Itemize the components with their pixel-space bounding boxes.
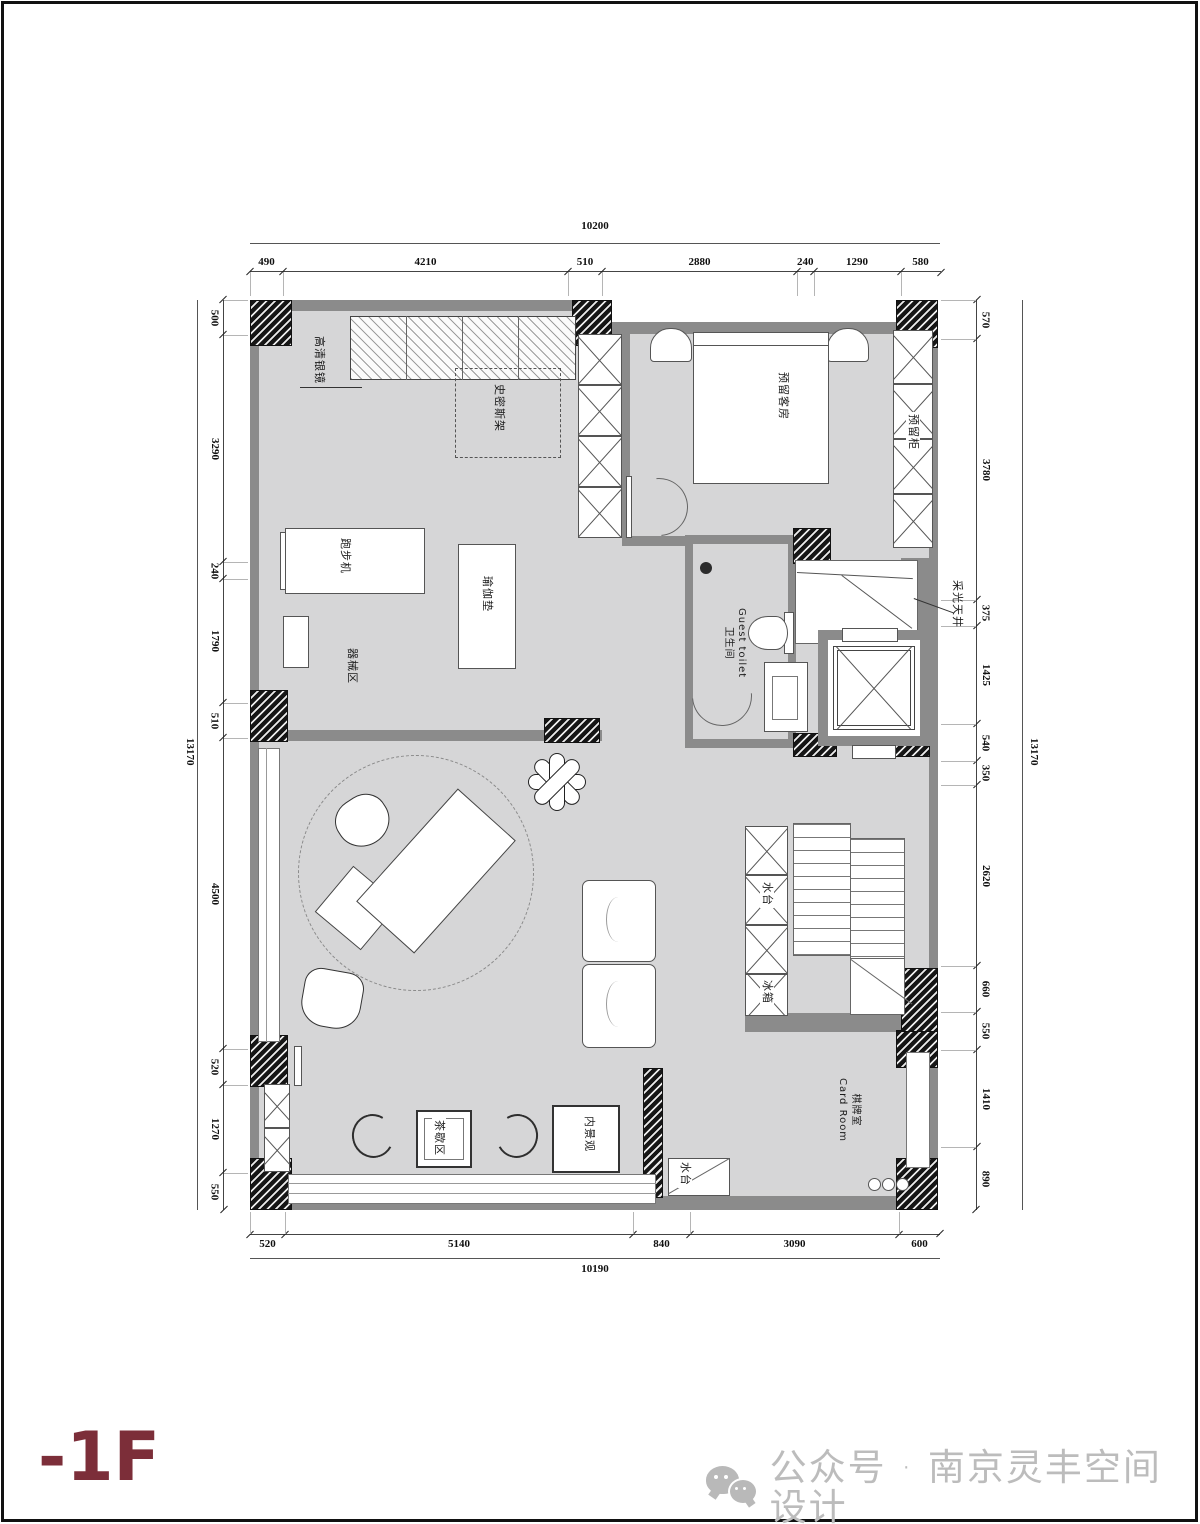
wall-toilet-top [693,535,788,544]
dim-segment: 2620 [976,785,994,966]
smith-rack-outline [455,368,561,458]
bar-stool [882,1178,895,1191]
dim-segment: 1425 [976,626,994,724]
label-skylight: 采光天井 [950,580,964,628]
gym-cabinet [578,334,622,538]
label-smith-rack: 史密斯架 [492,384,506,432]
wall-toilet-bottom [685,739,796,748]
dim-segment: 580 [901,256,941,272]
dim-left-total: 13170 [184,738,196,766]
wall-top [250,300,602,311]
dim-segment: 540 [976,724,994,761]
dim-left-total-line [197,300,198,1210]
cabinet-cell [745,826,788,875]
cabinet-cell [264,1084,290,1128]
dim-segment: 840 [633,1234,690,1250]
mirror-leader-line [300,387,362,388]
dim-bottom-total: 10190 [250,1263,940,1275]
dim-segment: 5140 [285,1234,633,1250]
toilet-bowl [748,616,788,650]
dim-segment: 510 [568,256,602,272]
pier-left-lower [250,1035,288,1087]
dim-top-total-line [250,243,940,244]
wechat-icon [706,1466,754,1510]
window-bottom-line [288,1193,656,1194]
dim-segment: 240 [797,256,814,272]
label-fridge: 冰箱 [760,978,774,1006]
mirror-divider [406,316,407,380]
dim-segment: 2880 [602,256,797,272]
stair-flight-right [850,838,905,959]
bar-stool [868,1178,881,1191]
label-toilet-cn: 卫生间 [722,627,735,660]
dim-segment: 600 [899,1234,940,1250]
cabinet-cell [893,494,933,548]
dim-segment: 520 [206,1049,224,1085]
nightstand-right [827,328,869,362]
dim-segment: 550 [206,1173,224,1210]
dim-segment: 4500 [206,738,224,1049]
dim-chain-right: 570 3780 375 1425 540 350 2620 660 550 1… [976,300,994,1210]
dim-segment: 660 [976,966,994,1012]
label-guest-room: 预留客房 [776,372,790,420]
tea-door-leaf [294,1046,302,1086]
cabinet-cell [893,330,933,384]
cabinet-cell [578,385,622,436]
watermark-text: 公众号 · 南京灵丰空间设计 [770,1448,1200,1524]
pier-top-left [250,300,292,346]
dim-segment: 510 [206,703,224,738]
bar-stool [896,1178,909,1191]
dim-segment: 240 [206,562,224,579]
floor-level-label: -1F [38,1424,160,1492]
dim-segment: 490 [250,256,283,272]
label-yoga-mat: 瑜伽垫 [480,576,494,612]
dim-segment: 520 [250,1234,285,1250]
label-water-counter-2: 水台 [678,1160,692,1188]
plant-icon [528,753,586,811]
label-card-room: 棋牌室 Card Room [836,1078,862,1142]
window-left-mullion [266,748,267,1042]
dim-top-total: 10200 [250,220,940,232]
label-card-room-cn: 棋牌室 [849,1094,862,1127]
nightstand-left [650,328,692,362]
label-reserved-cabinet: 预留柜 [906,412,920,452]
sink-basin [772,676,798,720]
elevator-landing [852,745,896,759]
label-inner-landscape: 内景观 [582,1116,596,1152]
cabinet-cell [745,925,788,974]
label-equipment-area: 器械区 [345,648,359,684]
stair-flight-left [793,823,851,956]
dim-right-total: 13170 [1028,738,1040,766]
dim-chain-left: 500 3290 240 1790 510 4500 520 1270 550 [206,300,224,1210]
label-mirror: 高清银镜 [312,336,326,384]
dim-segment: 890 [976,1147,994,1210]
elevator-door [842,628,898,642]
dim-chain-top: 490 4210 510 2880 240 1290 580 [250,256,940,272]
guest-bed-headboard [693,332,829,346]
window-left [258,748,280,1042]
cabinet-cell [264,1128,290,1172]
dim-right-total-line [1022,300,1023,1210]
label-tea-area: 茶歇区 [432,1118,446,1158]
label-water-counter: 水台 [760,880,774,908]
window-bottom [288,1174,656,1204]
dim-bottom-total-line [250,1258,940,1259]
dim-segment: 500 [206,300,224,335]
gym-bench [283,616,309,668]
dim-segment: 3090 [690,1234,899,1250]
wechat-bubble-small [728,1478,758,1505]
label-treadmill: 跑步机 [338,538,352,574]
label-toilet-en: Guest toilet [735,608,748,678]
floorplan-page: 10200 490 4210 510 2880 240 1290 580 520… [0,0,1200,1524]
dim-segment: 1410 [976,1050,994,1147]
pier-gym-divider [544,718,600,743]
dim-segment: 550 [976,1012,994,1050]
floor-cushion [582,964,656,1048]
cabinet-cell [578,487,622,538]
guest-bed [693,332,829,484]
pier-toilet-corner [793,528,831,564]
stair-landing-cut [850,958,905,1015]
dim-segment: 1790 [206,579,224,703]
cabinet-cell [578,436,622,487]
watermark: 公众号 · 南京灵丰空间设计 [706,1448,1200,1524]
dim-segment: 570 [976,300,994,339]
dim-chain-bottom: 520 5140 840 3090 600 [250,1234,940,1250]
cardroom-side-cabinet [906,1052,930,1168]
pier-left-mid [250,690,288,742]
label-card-room-en: Card Room [836,1078,849,1142]
cabinet-cell [578,334,622,385]
dim-segment: 4210 [283,256,568,272]
wall-toilet-left [685,535,693,748]
dim-segment: 1270 [206,1085,224,1173]
window-bottom-line [288,1183,656,1184]
dim-segment: 1290 [814,256,901,272]
dim-segment: 3780 [976,339,994,600]
dim-segment: 3290 [206,335,224,562]
shower-head-icon [700,562,712,574]
floor-cushion [582,880,656,962]
tea-cabinet [264,1084,290,1172]
elevator-car [833,646,915,730]
treadmill [285,528,425,594]
